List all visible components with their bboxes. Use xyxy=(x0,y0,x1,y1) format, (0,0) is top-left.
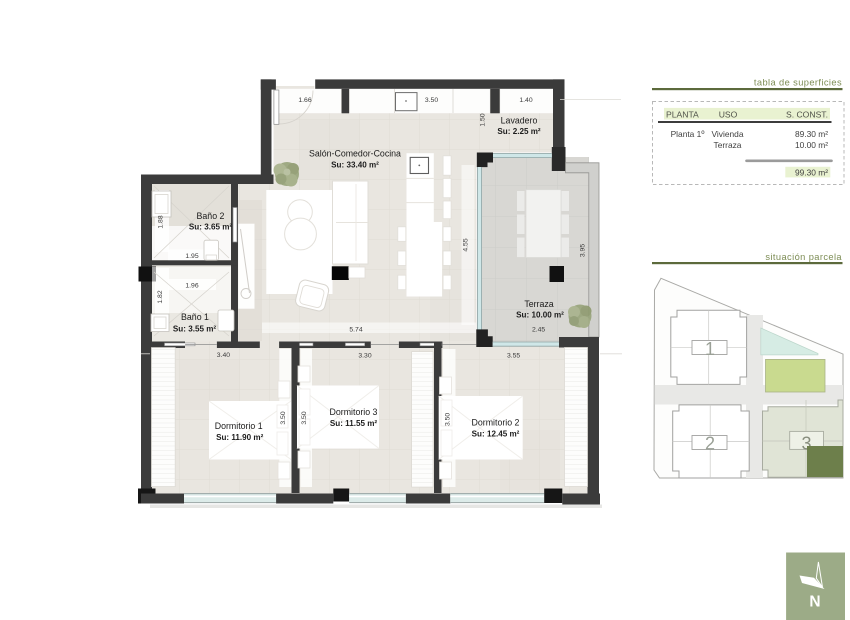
svg-text:1.95: 1.95 xyxy=(185,253,198,260)
svg-text:PLANTA: PLANTA xyxy=(666,109,699,119)
svg-text:3.55: 3.55 xyxy=(507,353,520,360)
svg-text:Salón-Comedor-Cocina: Salón-Comedor-Cocina xyxy=(309,149,401,159)
svg-text:1.88: 1.88 xyxy=(158,215,165,228)
svg-text:2.45: 2.45 xyxy=(532,327,545,334)
svg-text:10.00 m²: 10.00 m² xyxy=(795,140,828,150)
svg-text:Su: 2.25 m²: Su: 2.25 m² xyxy=(497,127,540,136)
svg-text:3.50: 3.50 xyxy=(444,413,451,426)
svg-text:Baño 2: Baño 2 xyxy=(197,211,225,221)
svg-text:3.40: 3.40 xyxy=(217,352,230,359)
svg-text:3.95: 3.95 xyxy=(579,244,586,257)
svg-text:Planta 1º: Planta 1º xyxy=(671,129,705,139)
svg-text:Vivienda: Vivienda xyxy=(712,129,744,139)
svg-text:Su: 3.55 m²: Su: 3.55 m² xyxy=(173,325,216,334)
svg-text:situación parcela: situación parcela xyxy=(765,252,842,262)
svg-text:3.50: 3.50 xyxy=(280,411,287,424)
svg-text:1.82: 1.82 xyxy=(157,290,164,303)
svg-text:1.50: 1.50 xyxy=(480,113,487,126)
svg-text:Dormitorio 3: Dormitorio 3 xyxy=(330,407,378,417)
svg-text:1.66: 1.66 xyxy=(298,97,311,104)
svg-text:4.55: 4.55 xyxy=(463,238,470,251)
svg-text:Su: 11.55 m²: Su: 11.55 m² xyxy=(330,419,378,428)
svg-text:tabla de superficies: tabla de superficies xyxy=(754,78,842,88)
svg-text:Terraza: Terraza xyxy=(714,140,742,150)
svg-text:99.30 m²: 99.30 m² xyxy=(795,168,828,178)
svg-text:Dormitorio 1: Dormitorio 1 xyxy=(215,421,263,431)
svg-text:Terraza: Terraza xyxy=(524,299,553,309)
svg-text:Su: 10.00 m²: Su: 10.00 m² xyxy=(516,311,564,320)
svg-text:5.74: 5.74 xyxy=(349,327,362,334)
svg-text:3.50: 3.50 xyxy=(425,97,438,104)
svg-text:1.96: 1.96 xyxy=(185,283,198,290)
svg-text:3.50: 3.50 xyxy=(301,411,308,424)
svg-text:Su: 12.45 m²: Su: 12.45 m² xyxy=(472,430,520,439)
svg-text:2: 2 xyxy=(705,434,715,454)
svg-text:1: 1 xyxy=(705,339,715,359)
svg-text:Su: 3.65 m²: Su: 3.65 m² xyxy=(189,223,232,232)
svg-text:Su: 33.40 m²: Su: 33.40 m² xyxy=(331,161,379,170)
svg-text:Su: 11.90 m²: Su: 11.90 m² xyxy=(216,433,264,442)
svg-text:Lavadero: Lavadero xyxy=(501,116,538,126)
svg-text:USO: USO xyxy=(719,109,738,119)
svg-text:S. CONST.: S. CONST. xyxy=(786,109,828,119)
svg-text:1.40: 1.40 xyxy=(519,97,532,104)
svg-text:N: N xyxy=(809,594,820,611)
svg-text:89.30 m²: 89.30 m² xyxy=(795,129,828,139)
svg-text:Dormitorio 2: Dormitorio 2 xyxy=(472,418,520,428)
svg-text:Baño 1: Baño 1 xyxy=(181,312,209,322)
svg-text:3.30: 3.30 xyxy=(358,353,371,360)
